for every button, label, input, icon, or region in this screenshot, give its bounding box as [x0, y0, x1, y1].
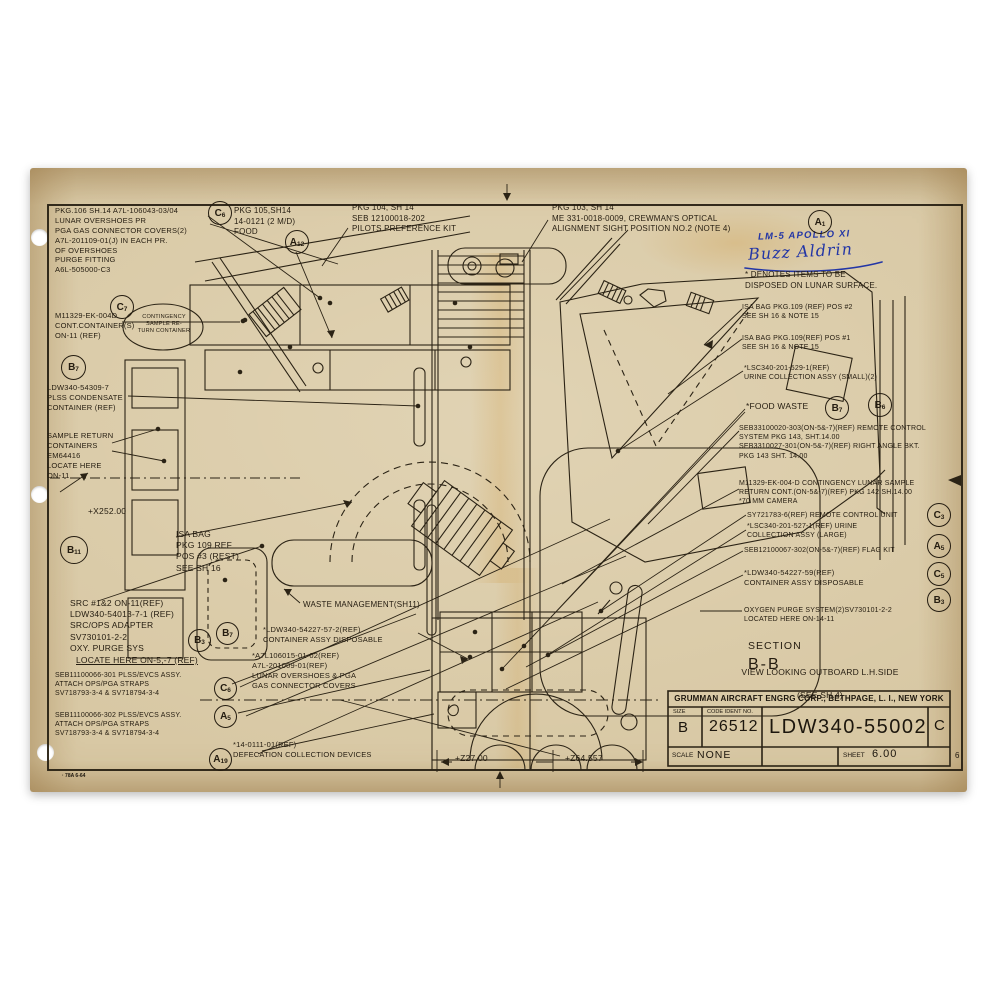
note-container-disposable-left: *LDW340-54227-57-2(REF) CONTAINER ASSY D… [263, 625, 383, 645]
note-defecation-devices: *14-0111-01(REF) DEFECATION COLLECTION D… [233, 740, 372, 760]
note-lunar-overshoes-center: *A7L106015-01-02(REF) A7L-201009-01(REF)… [252, 651, 356, 691]
title-block-revision: C [934, 717, 945, 734]
title-block-scale-value: NONE [697, 749, 731, 761]
title-block-code-label: CODE IDENT NO. [707, 709, 753, 715]
callout-b7-left: B7 [61, 355, 86, 380]
note-contingency-bubble: CONTINGENCY SAMPLE RE- TURN CONTAINER [130, 314, 198, 335]
bottom-register-arrow-icon [496, 771, 504, 779]
note-remote-control: SEB33100020-303(ON-5&-7)(REF) REMOTE CON… [739, 424, 926, 461]
note-urine-large: *LSC340-201-527-1(REF) URINE COLLECTION … [747, 522, 857, 540]
callout-a1: A1 [808, 210, 832, 234]
callout-a19: A19 [209, 748, 232, 771]
callout-c3: C3 [927, 503, 951, 527]
note-src-ops: SRC #1&2 ON-11(REF) LDW340-54013-7-1 (RE… [70, 598, 174, 654]
callout-b7-right: B7 [825, 396, 849, 420]
title-block-scale-label: SCALE [672, 752, 693, 759]
note-seb302: SEB11100066-302 PLSS/EVCS ASSY. ATTACH O… [55, 711, 181, 739]
title-block-drawing-number: LDW340-55002 [769, 716, 927, 739]
note-isa-bag-pos3: ISA BAG PKG 109 REF POS #3 (REST) SEE SH… [176, 529, 239, 574]
dim-z64: +Z64.557 [565, 753, 603, 764]
callout-a12: A12 [285, 230, 309, 254]
note-container-disposable-right: *LDW340-54227-59(REF) CONTAINER ASSY DIS… [744, 568, 864, 588]
margin-pencil-mark: 6 [955, 751, 959, 760]
note-contingency-right: M11329-EK-004-D CONTINGENCY LUNAR SAMPLE… [739, 479, 914, 507]
note-pkg104: PKG 104, SH 14 SEB 12100018-202 PILOTS P… [352, 203, 456, 235]
callout-b6-right: B6 [868, 393, 892, 417]
note-pkg106: PKG.106 SH.14 A7L-106043-03/04 LUNAR OVE… [55, 206, 225, 275]
note-seb301: SEB11100066-301 PLSS/EVCS ASSY. ATTACH O… [55, 671, 181, 699]
right-edge-arrow-icon [948, 475, 961, 486]
note-plss-condensate: LDW340-54309-7 PLSS CONDENSATE CONTAINER… [47, 383, 123, 413]
title-block-sheet-label: SHEET [843, 752, 865, 759]
note-pkg103: PKG 103, SH 14 ME 331-0018-0009, CREWMAN… [552, 203, 730, 235]
callout-a5-right: A5 [927, 534, 951, 558]
callout-b11: B11 [60, 536, 88, 564]
callout-c6-low: C6 [214, 677, 237, 700]
title-block-size-label: SIZE [673, 709, 685, 715]
form-stamp: · 78A 6-64 [62, 773, 85, 779]
top-register-arrow-icon [503, 193, 511, 201]
note-waste-management: WASTE MANAGEMENT(SH11) [303, 600, 420, 611]
callout-c6-top: C6 [208, 201, 232, 225]
note-isa-bag-pos2: ISA BAG PKG.109 (REF) POS #2 SEE SH 16 &… [742, 303, 853, 321]
note-sample-return: SAMPLE RETURN CONTAINERS EM64416 LOCATE … [47, 431, 113, 480]
callout-c7: C7 [110, 295, 134, 319]
callout-b3-mid: B3 [188, 629, 211, 652]
view-caption-line1: VIEW LOOKING OUTBOARD L.H.SIDE [741, 667, 898, 677]
callout-b7-mid: B7 [216, 622, 239, 645]
note-oxygen-purge: OXYGEN PURGE SYSTEM(2)SV730101-2-2 LOCAT… [744, 606, 892, 624]
note-src-locate: LOCATE HERE ON-5,-7 (REF) [76, 655, 198, 666]
callout-c5: C5 [927, 562, 951, 586]
dim-x252: +X252.00 [88, 506, 126, 517]
dim-z27: +Z27.00 [455, 753, 488, 764]
callout-a5-low: A5 [214, 705, 237, 728]
note-remote-unit: SY721783-6(REF) REMOTE CONTROL UNIT [747, 511, 898, 520]
note-food-waste: *FOOD WASTE [746, 401, 808, 412]
title-block-sheet-value: 6.00 [872, 748, 897, 760]
section-label: SECTION [748, 640, 802, 652]
note-isa-bag-pos1: ISA BAG PKG.109(REF) POS #1 SEE SH 16 & … [742, 334, 851, 352]
callout-b3-right: B3 [927, 588, 951, 612]
note-urine-small: *LSC340-201-529-1(REF) URINE COLLECTION … [744, 364, 877, 382]
note-denotes-legend: * DENOTES ITEMS TO BE DISPOSED ON LUNAR … [745, 270, 877, 291]
title-block-code-value: 26512 [709, 718, 759, 736]
note-flag-kit: SEB12100067-302(ON-5&-7)(REF) FLAG KIT [744, 546, 895, 555]
title-block-company: GRUMMAN AIRCRAFT ENGRG CORP., BETHPAGE, … [668, 694, 950, 703]
note-pkg105: PKG 105,SH14 14-0121 (2 M/D) FOOD [234, 206, 295, 238]
title-block-size-value: B [678, 719, 688, 736]
